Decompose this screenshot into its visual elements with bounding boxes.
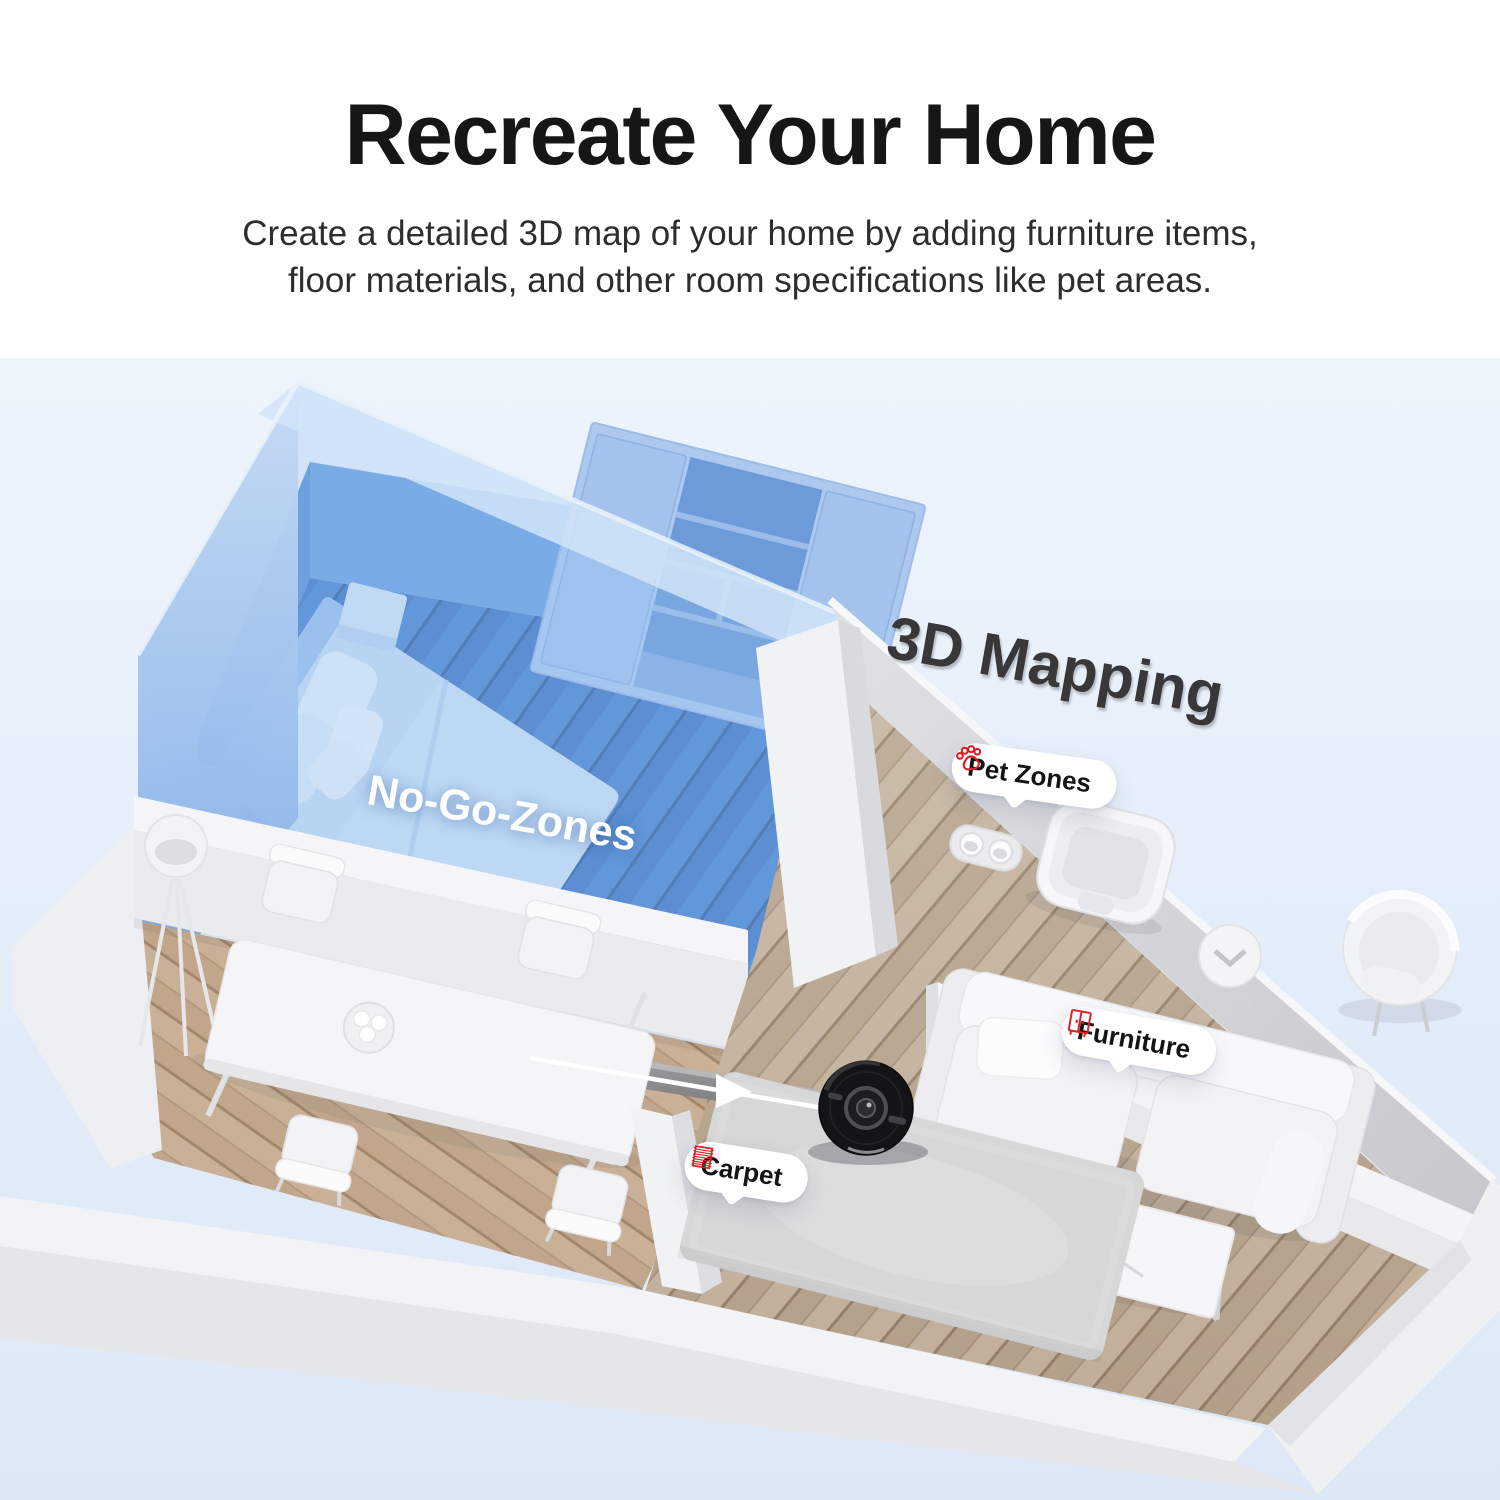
marketing-page: Recreate Your Home Create a detailed 3D … [0,0,1500,1500]
carpet-icon [684,1138,722,1176]
page-title: Recreate Your Home [0,86,1500,185]
subtitle-line-2: floor materials, and other room specific… [288,261,1212,300]
throw-pillow [976,1016,1065,1080]
armchair [1331,879,1469,1036]
header: Recreate Your Home Create a detailed 3D … [0,0,1500,358]
paw-icon [951,740,988,777]
home-3d-scene: 3D Mapping No-Go-Zones Pet Zones [0,358,1500,1500]
wardrobe-icon [1061,1003,1099,1041]
page-subtitle: Create a detailed 3D map of your home by… [150,211,1350,305]
subtitle-line-1: Create a detailed 3D map of your home by… [242,214,1258,253]
scene-illustration [0,358,1500,1500]
